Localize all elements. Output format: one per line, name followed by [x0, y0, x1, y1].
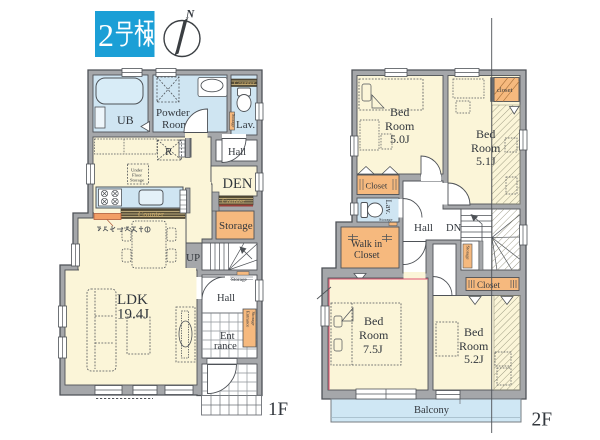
svg-text:Counter: Counter: [222, 198, 245, 206]
svg-text:5.1J: 5.1J: [476, 154, 496, 168]
svg-text:5.2J: 5.2J: [464, 352, 484, 366]
svg-text:Room: Room: [459, 339, 489, 353]
svg-text:Hall: Hall: [228, 147, 246, 158]
svg-text:19.4J: 19.4J: [117, 307, 149, 323]
svg-text:Hall: Hall: [414, 222, 433, 234]
svg-text:N: N: [185, 9, 195, 21]
svg-text:Bed: Bed: [390, 105, 409, 119]
svg-text:1F: 1F: [268, 399, 288, 420]
svg-text:Storage: Storage: [251, 312, 256, 326]
svg-text:7.5J: 7.5J: [363, 342, 383, 356]
svg-text:Storage: Storage: [466, 246, 471, 260]
svg-text:Bed: Bed: [476, 127, 495, 141]
svg-text:Closet: Closet: [354, 250, 380, 261]
svg-text:DN: DN: [446, 223, 462, 234]
svg-text:Walk in: Walk in: [351, 239, 382, 250]
svg-text:DEN: DEN: [223, 176, 253, 192]
svg-text:UP: UP: [186, 252, 200, 264]
svg-text:Storage: Storage: [379, 217, 392, 222]
svg-text:Counter: Counter: [138, 210, 164, 219]
svg-text:Hall: Hall: [217, 293, 235, 304]
svg-text:Room: Room: [359, 328, 389, 342]
svg-text:UB: UB: [117, 113, 134, 127]
svg-text:Storage: Storage: [231, 277, 248, 283]
svg-text:closet: closet: [497, 87, 513, 94]
svg-text:Closet: Closet: [477, 280, 501, 290]
svg-text:Bed: Bed: [464, 325, 483, 339]
svg-text:Powder: Powder: [156, 107, 190, 119]
svg-text:5.0J: 5.0J: [390, 132, 410, 146]
svg-text:Balcony: Balcony: [414, 405, 450, 416]
svg-text:Bed: Bed: [364, 314, 383, 328]
svg-text:Entrance: Entrance: [246, 311, 251, 327]
svg-text:Counter: Counter: [234, 80, 256, 87]
svg-text:R: R: [165, 146, 173, 158]
svg-text:2F: 2F: [532, 410, 553, 431]
svg-text:Room: Room: [385, 119, 415, 133]
svg-text:Storage: Storage: [130, 178, 144, 183]
svg-text:Lav.: Lav.: [236, 119, 255, 131]
svg-text:Storage: Storage: [219, 220, 253, 232]
svg-text:2: 2: [98, 17, 114, 53]
svg-text:rance: rance: [214, 341, 237, 352]
svg-text:Closet: Closet: [366, 181, 388, 191]
svg-text:Room: Room: [471, 141, 501, 155]
svg-text:Lav.: Lav.: [384, 200, 394, 215]
